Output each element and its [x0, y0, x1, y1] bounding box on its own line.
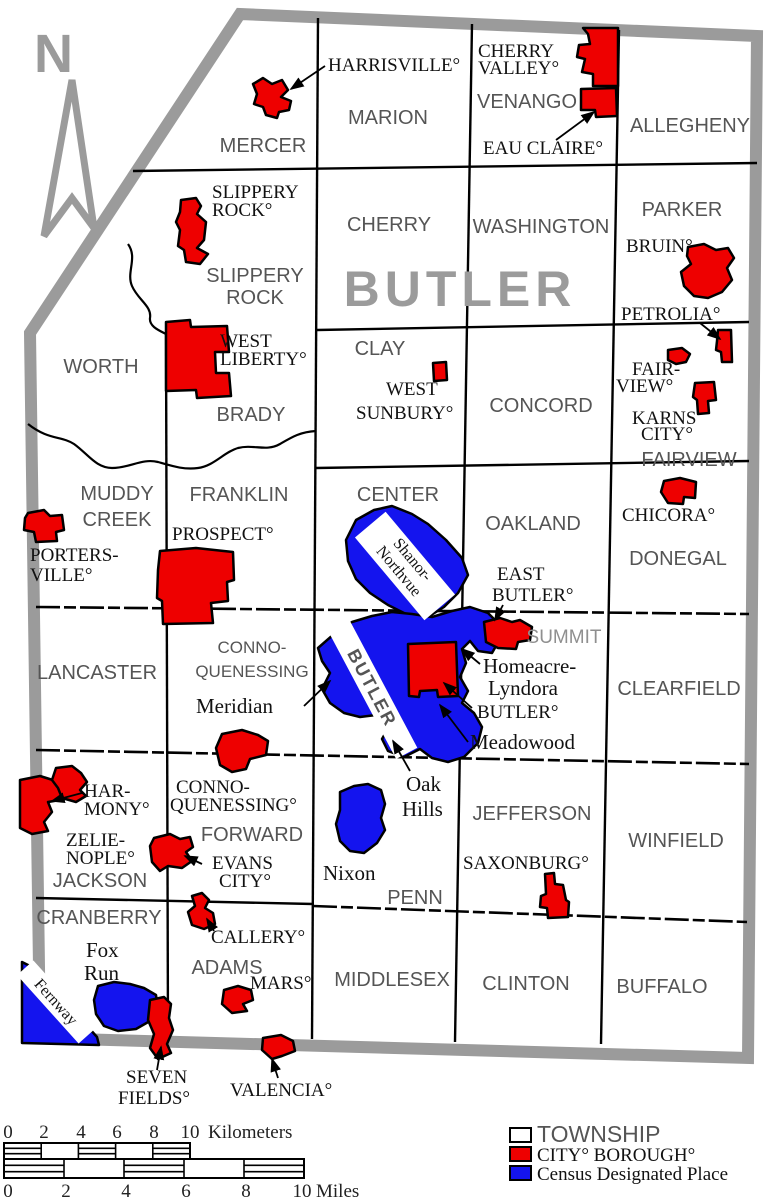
scale-mi-unit: Miles: [316, 1181, 359, 1200]
scale-mi-tick: 10: [293, 1181, 312, 1200]
label-east-butler: EAST: [497, 564, 545, 585]
label-brady: BRADY: [217, 404, 286, 426]
label-chicora: CHICORA°: [622, 505, 715, 526]
label-buffalo: BUFFALO: [616, 976, 707, 998]
label-marion: MARION: [348, 107, 428, 129]
label-allegheny: ALLEGHENY: [630, 115, 750, 137]
label-west-sunbury: SUNBURY°: [356, 403, 453, 424]
label-nixon: Nixon: [323, 861, 376, 885]
scale-km-tick: 0: [3, 1122, 13, 1143]
scale-mi-tick: 4: [121, 1181, 131, 1200]
label-fox-run: Fox: [86, 938, 119, 962]
label-portersville: PORTERS-: [30, 545, 119, 566]
label-saxonburg: SAXONBURG°: [463, 853, 589, 874]
label-worth: WORTH: [63, 356, 138, 378]
label-prospect: PROSPECT°: [172, 524, 274, 545]
label-mercer: MERCER: [220, 135, 307, 157]
label-west-sunbury: WEST: [386, 379, 438, 400]
scale-mi-tick: 2: [61, 1181, 71, 1200]
legend-borough-label: CITY° BOROUGH°: [537, 1145, 695, 1166]
label-oakland: OAKLAND: [485, 513, 581, 535]
label-cherry-twp: CHERRY: [347, 214, 431, 236]
label-venango: VENANGO: [477, 91, 577, 113]
label-cranberry: CRANBERRY: [36, 907, 161, 929]
label-clay: CLAY: [355, 338, 406, 360]
label-slippery-rock-twp: ROCK: [226, 287, 284, 309]
scale-mi-tick: 6: [181, 1181, 191, 1200]
leader-arrow: [272, 1059, 278, 1078]
label-slippery-rock-twp: SLIPPERY: [206, 265, 303, 287]
label-muddy-creek: CREEK: [83, 509, 153, 531]
label-valencia: VALENCIA°: [230, 1080, 332, 1101]
label-cherry-valley: VALLEY°: [478, 58, 559, 79]
label-franklin: FRANKLIN: [190, 484, 289, 506]
label-jackson: JACKSON: [53, 870, 147, 892]
borough-shape-evans-city: [150, 834, 193, 871]
label-eau-claire: EAU CLAIRE°: [483, 138, 603, 159]
label-meadowood: Meadowood: [470, 730, 575, 754]
label-butler-city: BUTLER°: [477, 702, 558, 723]
label-fairview-borough: VIEW°: [616, 376, 673, 397]
scale-mi-bar: [4, 1159, 304, 1178]
label-west-liberty: LIBERTY°: [220, 349, 307, 370]
scale-km-bar: [4, 1143, 190, 1159]
county-name: BUTLER: [344, 261, 577, 317]
scale-mi-tick: 0: [3, 1181, 13, 1200]
label-evans-city: CITY°: [219, 871, 271, 892]
label-harrisville: HARRISVILLE°: [328, 55, 460, 76]
label-fox-run: Run: [84, 961, 120, 985]
label-summit: SUMMIT: [527, 627, 602, 648]
label-jefferson: JEFFERSON: [473, 803, 592, 825]
legend-township-swatch: [510, 1128, 531, 1142]
label-penn: PENN: [387, 887, 443, 909]
label-middlesex: MIDDLESEX: [334, 969, 450, 991]
scale-km-tick: 2: [39, 1122, 49, 1143]
legend-cdp-swatch: [510, 1166, 531, 1180]
label-lancaster: LANCASTER: [37, 662, 157, 684]
legend-township-label: TOWNSHIP: [537, 1121, 661, 1147]
scale-km-tick: 6: [112, 1122, 122, 1143]
label-concord: CONCORD: [489, 395, 592, 417]
label-petrolia: PETROLIA°: [621, 304, 720, 325]
label-homeacre-lyndora: Lyndora: [488, 676, 559, 700]
borough-shape-valencia: [262, 1035, 295, 1059]
butler-county-map-page: Shanor-NorthvueBUTLERFernway MERCERMARIO…: [0, 0, 782, 1200]
label-portersville: VILLE°: [30, 565, 92, 586]
label-fairview-twp: FAIRVIEW: [641, 449, 736, 471]
butler-county-map: Shanor-NorthvueBUTLERFernway MERCERMARIO…: [0, 0, 782, 1200]
label-connoquenessing-twp: QUENESSING: [195, 662, 308, 681]
label-connoquenessing-twp: CONNO-: [218, 638, 287, 657]
label-karns-city: CITY°: [641, 424, 693, 445]
label-callery: CALLERY°: [211, 927, 305, 948]
label-east-butler: BUTLER°: [492, 585, 573, 606]
label-center: CENTER: [357, 484, 439, 506]
cdp-shape-nixon: [336, 784, 385, 853]
label-harmony: MONY°: [84, 799, 150, 820]
label-winfield: WINFIELD: [628, 830, 724, 852]
label-washington: WASHINGTON: [473, 216, 610, 238]
label-clinton: CLINTON: [482, 973, 569, 995]
label-seven-fields: FIELDS°: [118, 1088, 190, 1109]
label-slippery-rock-borough: ROCK°: [212, 200, 272, 221]
label-donegal: DONEGAL: [629, 548, 727, 570]
scale-km-tick: 8: [149, 1122, 159, 1143]
north-label: N: [34, 24, 73, 84]
legend-cdp-label: Census Designated Place: [537, 1164, 728, 1185]
label-bruin: BRUIN°: [626, 236, 693, 257]
label-muddy-creek: MUDDY: [80, 483, 153, 505]
scale-bar: Kilometers Miles 02468100246810: [3, 1122, 359, 1200]
label-clearfield: CLEARFIELD: [617, 678, 740, 700]
label-meridian: Meridian: [196, 694, 273, 718]
scale-km-tick: 4: [76, 1122, 86, 1143]
legend: TOWNSHIP CITY° BOROUGH° Census Designate…: [510, 1121, 728, 1185]
label-oak-hills: Oak: [406, 772, 441, 796]
label-oak-hills: Hills: [402, 797, 443, 821]
scale-mi-tick: 8: [241, 1181, 251, 1200]
label-zelienople: NOPLE°: [66, 848, 135, 869]
label-mars: MARS°: [250, 973, 311, 994]
label-parker: PARKER: [642, 199, 723, 221]
label-seven-fields: SEVEN: [126, 1067, 188, 1088]
label-homeacre-lyndora: Homeacre-: [483, 654, 576, 678]
north-arrow-icon: [44, 80, 94, 236]
north-indicator: N: [34, 24, 94, 236]
legend-borough-swatch: [510, 1147, 531, 1161]
label-forward: FORWARD: [201, 824, 303, 846]
scale-km-unit: Kilometers: [208, 1122, 292, 1143]
label-connoquenessing-borough: QUENESSING°: [170, 795, 297, 816]
scale-km-tick: 10: [181, 1122, 200, 1143]
